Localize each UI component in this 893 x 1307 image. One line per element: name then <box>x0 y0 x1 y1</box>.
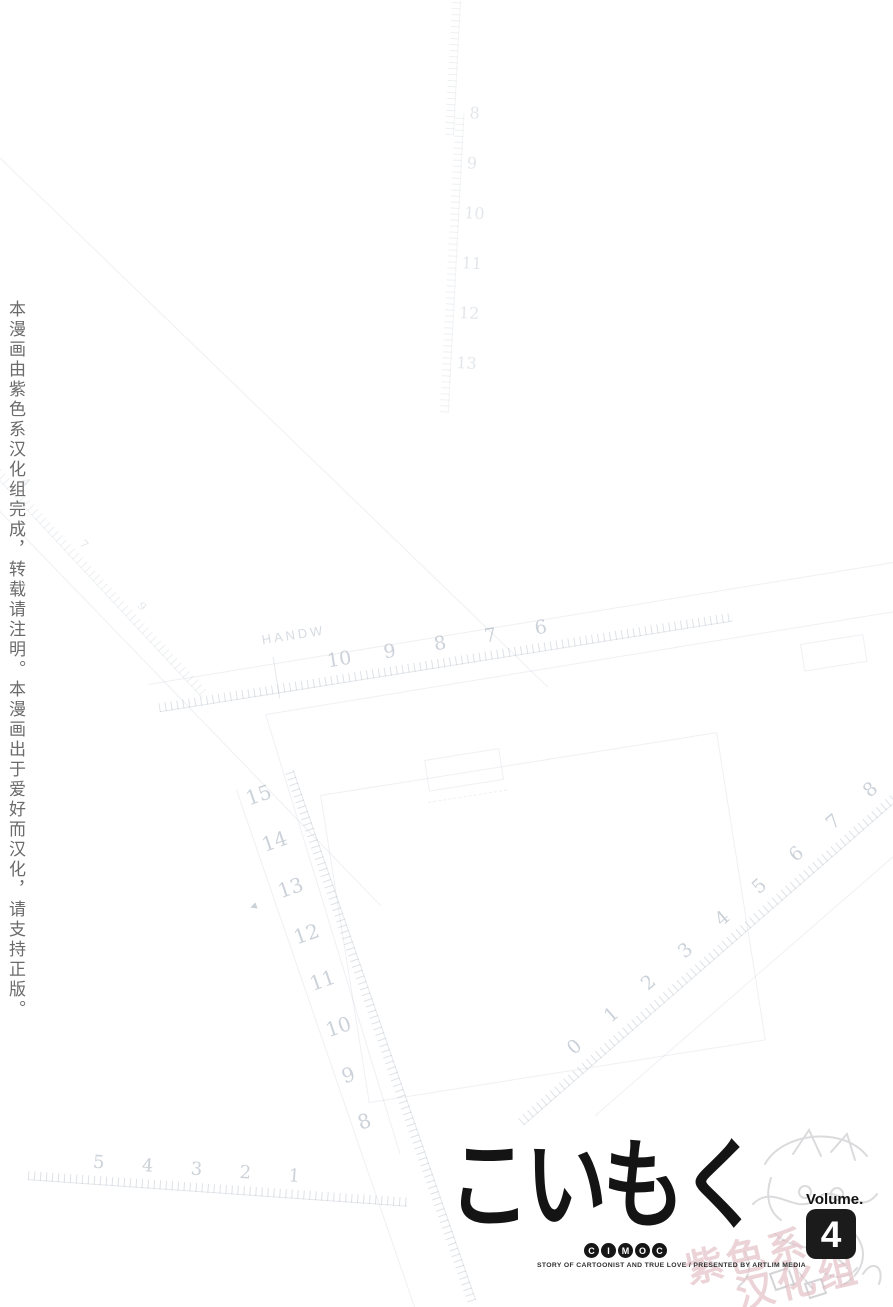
series-title-logo: こいもく <box>448 1136 757 1234</box>
ruler-handw-ticks <box>158 613 732 713</box>
cimoc-lettermark: CIMOC <box>584 1243 667 1258</box>
volume-number-badge: 4 <box>806 1209 856 1259</box>
volume-number: 4 <box>821 1216 842 1253</box>
ruler-mini-diagonal: 479 <box>0 432 220 704</box>
ruler-bottom-left: 54321 <box>67 1150 399 1213</box>
ruler-arrow-mark: ◄ <box>246 899 260 914</box>
ruler-brand-label: HANDW <box>261 622 327 647</box>
logo-tagline: STORY OF CARTOONIST AND TRUE LOVE / PRES… <box>537 1262 806 1269</box>
manga-credits-page: HANDW 109876 15141312111098 ◄ 012345678 … <box>0 0 893 1307</box>
volume-label: Volume. <box>806 1191 863 1208</box>
ruler-top-vertical: 8910111213 <box>446 103 504 445</box>
right-small-rectangle <box>800 634 868 672</box>
translator-note: 本漫画由紫色系汉化组完成，转载请注明。本漫画出于爱好而汉化，请支持正版。 <box>3 300 28 1040</box>
